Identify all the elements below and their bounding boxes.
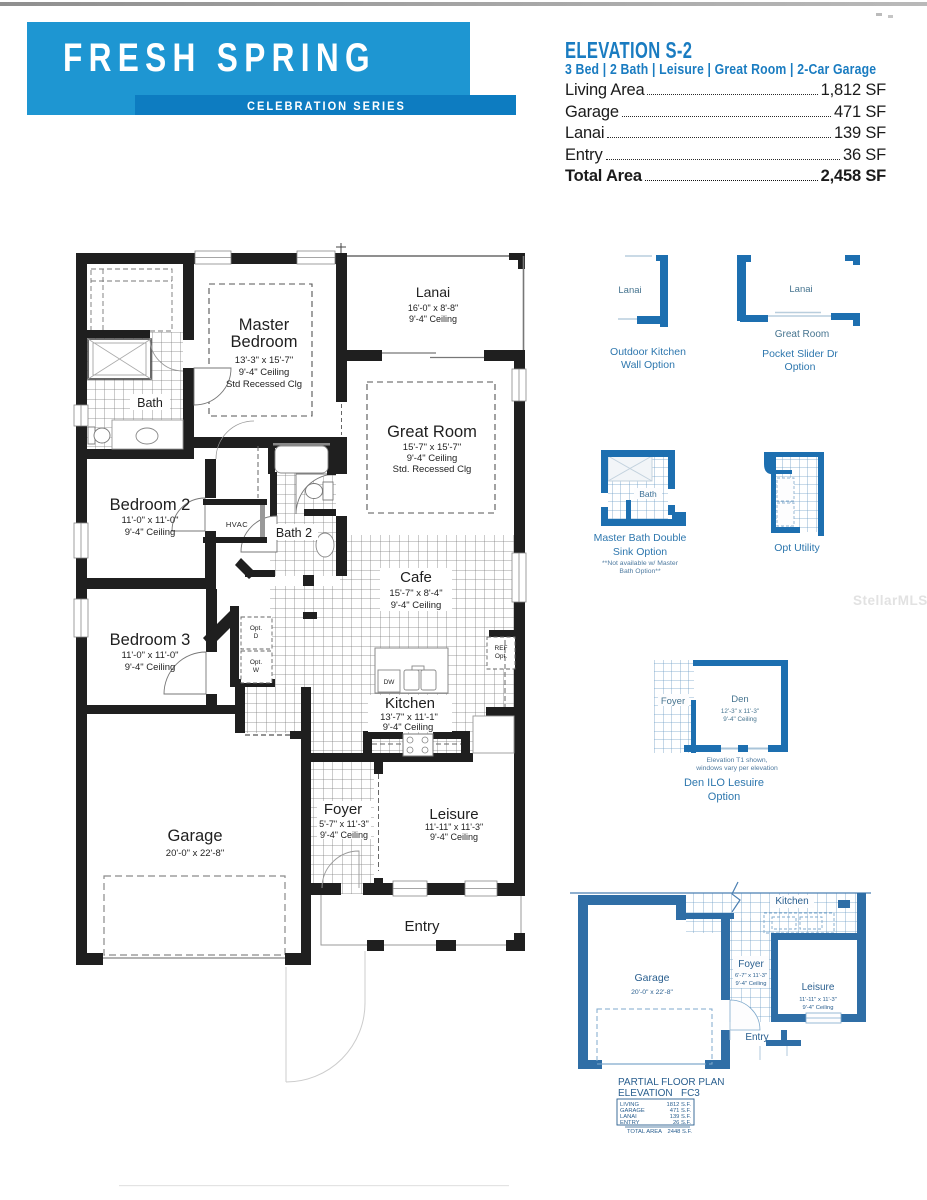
svg-text:12'-3" x 11'-3": 12'-3" x 11'-3" [721, 708, 759, 715]
svg-text:9'-4" Ceiling: 9'-4" Ceiling [736, 981, 767, 987]
svg-text:Bath: Bath [137, 396, 163, 410]
svg-text:Std. Recessed Clg: Std. Recessed Clg [393, 464, 472, 475]
svg-text:Entry: Entry [404, 918, 440, 935]
svg-text:5'-7" x 11'-3": 5'-7" x 11'-3" [319, 819, 369, 829]
svg-text:Elevation T1 shown,: Elevation T1 shown, [706, 757, 767, 764]
svg-text:Foyer: Foyer [738, 959, 764, 970]
svg-text:9'-4" Ceiling: 9'-4" Ceiling [391, 600, 442, 611]
svg-text:11'-0" x 11'-0": 11'-0" x 11'-0" [121, 650, 178, 661]
svg-text:9'-4" Ceiling: 9'-4" Ceiling [803, 1005, 834, 1011]
svg-text:Leisure: Leisure [802, 982, 835, 993]
svg-text:Opt Utility: Opt Utility [774, 542, 820, 554]
svg-text:6'-7" x 11'-3": 6'-7" x 11'-3" [735, 973, 767, 979]
svg-text:Std Recessed Clg: Std Recessed Clg [226, 379, 302, 390]
svg-text:15'-7" x 15'-7": 15'-7" x 15'-7" [403, 442, 461, 453]
svg-text:Lanai: Lanai [789, 284, 812, 295]
svg-text:Bedroom: Bedroom [231, 333, 298, 351]
svg-text:Bath: Bath [639, 489, 657, 499]
svg-text:Master: Master [239, 316, 290, 334]
svg-text:Master Bath Double: Master Bath Double [594, 532, 687, 544]
svg-text:Option: Option [708, 791, 740, 803]
svg-text:9'-4" Ceiling: 9'-4" Ceiling [239, 367, 290, 378]
svg-text:Bedroom 3: Bedroom 3 [110, 631, 191, 649]
svg-text:Opt.: Opt. [250, 659, 262, 666]
svg-text:9'-4" Ceiling: 9'-4" Ceiling [723, 716, 757, 723]
svg-text:PARTIAL FLOOR PLAN: PARTIAL FLOOR PLAN [618, 1077, 725, 1088]
svg-text:Wall Option: Wall Option [621, 359, 675, 371]
svg-text:Kitchen: Kitchen [385, 695, 435, 712]
svg-text:26 S.F.: 26 S.F. [673, 1120, 691, 1126]
svg-text:Great Room: Great Room [775, 329, 829, 340]
svg-text:Sink Option: Sink Option [613, 546, 667, 558]
svg-text:D: D [254, 633, 259, 640]
svg-text:Den: Den [731, 694, 748, 705]
svg-text:TOTAL AREA: TOTAL AREA [627, 1129, 662, 1135]
svg-text:Great Room: Great Room [387, 423, 477, 441]
svg-text:HVAC: HVAC [226, 520, 248, 529]
svg-text:Pocket Slider Dr: Pocket Slider Dr [762, 348, 838, 360]
svg-text:Kitchen: Kitchen [775, 896, 808, 907]
svg-text:Bath Option**: Bath Option** [619, 568, 661, 575]
svg-text:20'-0" x 22'-8": 20'-0" x 22'-8" [166, 848, 224, 859]
svg-text:Foyer: Foyer [661, 696, 685, 707]
svg-text:Lanai: Lanai [416, 284, 450, 300]
svg-text:Bedroom 2: Bedroom 2 [110, 496, 191, 514]
svg-text:Foyer: Foyer [324, 801, 362, 818]
svg-text:**Not available w/ Master: **Not available w/ Master [602, 560, 679, 567]
svg-text:DW: DW [384, 679, 396, 686]
svg-text:11'-11" x 11'-3": 11'-11" x 11'-3" [425, 822, 483, 832]
svg-text:ENTRY: ENTRY [620, 1120, 640, 1126]
svg-text:Outdoor Kitchen: Outdoor Kitchen [610, 346, 686, 358]
svg-text:15'-7" x 8'-4": 15'-7" x 8'-4" [389, 588, 442, 599]
svg-text:REF: REF [495, 645, 508, 652]
svg-text:9'-4" Ceiling: 9'-4" Ceiling [125, 527, 176, 538]
svg-text:Lanai: Lanai [618, 285, 641, 296]
svg-text:9'-4" Ceiling: 9'-4" Ceiling [409, 314, 457, 324]
svg-text:Garage: Garage [634, 972, 669, 984]
svg-text:Leisure: Leisure [429, 806, 478, 823]
svg-text:9'-4" Ceiling: 9'-4" Ceiling [125, 662, 176, 673]
svg-text:11'-11" x 11'-3": 11'-11" x 11'-3" [799, 997, 837, 1003]
svg-text:Den ILO Lesuire: Den ILO Lesuire [684, 777, 764, 789]
svg-text:9'-4" Ceiling: 9'-4" Ceiling [383, 722, 434, 733]
svg-text:9'-4" Ceiling: 9'-4" Ceiling [430, 832, 478, 842]
svg-text:Opt.: Opt. [250, 625, 262, 632]
svg-text:ELEVATION FC3: ELEVATION FC3 [618, 1088, 700, 1099]
svg-text:Entry: Entry [745, 1032, 768, 1043]
svg-text:Garage: Garage [167, 827, 222, 845]
svg-text:W: W [253, 667, 260, 674]
svg-text:13'-3" x 15'-7": 13'-3" x 15'-7" [235, 355, 293, 366]
svg-text:Bath 2: Bath 2 [276, 526, 312, 540]
svg-text:windows vary per elevation: windows vary per elevation [695, 765, 778, 772]
svg-text:20'-0" x 22'-8": 20'-0" x 22'-8" [631, 989, 673, 996]
svg-text:Option: Option [785, 361, 816, 373]
svg-text:9'-4" Ceiling: 9'-4" Ceiling [407, 453, 458, 464]
svg-text:11'-0" x 11'-0": 11'-0" x 11'-0" [121, 515, 178, 526]
svg-text:9'-4" Ceiling: 9'-4" Ceiling [320, 830, 368, 840]
svg-text:Cafe: Cafe [400, 569, 432, 586]
svg-text:2448 S.F.: 2448 S.F. [668, 1129, 693, 1135]
svg-text:16'-0" x 8'-8": 16'-0" x 8'-8" [408, 303, 458, 313]
